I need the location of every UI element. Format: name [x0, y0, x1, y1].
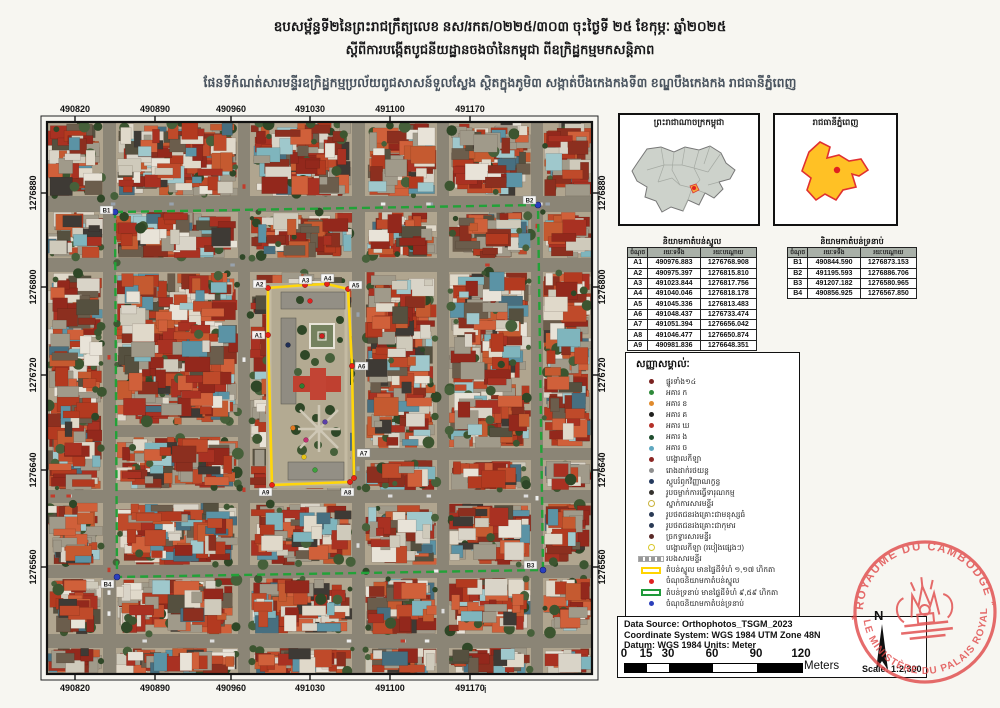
inset-map-phnom-penh: រាជធានីភ្នំពេញ	[773, 113, 898, 226]
point-symbol	[649, 457, 654, 462]
y-axis-label: 1276880	[597, 175, 607, 210]
legend-item-label: ច្រកទ្វារសារមន្ទីរ	[666, 533, 711, 541]
legend-item-label: រូបថតជនរងគ្រោះជាមនុស្សធំ	[666, 511, 745, 519]
table-row: A5491045.3361276813.483	[628, 299, 757, 309]
legend-item: អគារ ក	[636, 387, 797, 398]
x-axis-label: 491100	[375, 683, 405, 693]
table-row: A4491040.0461276818.178	[628, 289, 757, 299]
scalebar-tick: 120	[791, 648, 810, 660]
table-row: A1490976.8831276768.908	[628, 258, 757, 268]
zone-symbol	[641, 589, 661, 596]
scalebar-tick: 30	[662, 648, 675, 660]
legend-item: រោងដាក់រថយន្ត	[636, 465, 797, 476]
y-axis-label: 1276800	[597, 269, 607, 304]
y-axis-label: 1276880	[28, 175, 38, 210]
column-header: រយៈទទឹង	[648, 248, 700, 258]
point-symbol	[649, 579, 654, 584]
scalebar-unit: Meters	[804, 660, 839, 672]
point-symbol	[649, 512, 654, 517]
svg-text:A2: A2	[256, 282, 264, 288]
legend-item: រូបថតជនរងគ្រោះជាមនុស្សធំ	[636, 509, 797, 520]
map-point-label: A5	[349, 281, 362, 289]
y-axis-label: 1276640	[28, 452, 38, 487]
legend-item-label: អគារ ច	[666, 444, 687, 452]
column-header: រយៈបណ្ដោយ	[700, 248, 756, 258]
column-header: រយៈបណ្ដោយ	[860, 248, 916, 258]
table-row: A8491046.4771276650.874	[628, 330, 757, 340]
point-symbol	[649, 401, 654, 406]
table-row: A7491051.3941276656.042	[628, 320, 757, 330]
y-axis-label: 1276720	[28, 357, 38, 392]
inset-map-cambodia: ព្រះរាជាណាចក្រកម្ពុជា	[618, 113, 760, 226]
x-axis-label: 491030	[295, 683, 325, 693]
legend-item: អគារ ច	[636, 443, 797, 454]
point-symbol	[648, 544, 655, 551]
map-point-label: B3	[524, 561, 537, 569]
y-axis-label: 1276640	[597, 452, 607, 487]
legend-item: របងសារមន្ទីរ	[636, 554, 797, 565]
data-source-block: Data Source: Orthophotos_TSGM_2023Coordi…	[618, 619, 926, 651]
legend-items: ផ្នូរទាំង១៤អគារ កអគារ ខអគារ គអគារ ឃអគារ …	[636, 376, 797, 609]
legend-item: ស្តូបរំឭកវិញ្ញាណក្ខន្ធ	[636, 476, 797, 487]
x-axis-label: 490960	[216, 683, 246, 693]
y-axis-label: 1276800	[28, 269, 38, 304]
point-symbol	[649, 446, 654, 451]
legend-item: អគារ ង	[636, 431, 797, 442]
phnom-penh-map-graphic	[775, 130, 892, 218]
legend-item-label: ផ្នូរទាំង១៤	[666, 378, 696, 386]
legend-item: តំបន់ស្នូល មានផ្ទៃដីទំហំ ១,១៧ ហិកតា	[636, 565, 797, 576]
legend-item-label: តំបន់ស្នូល មានផ្ទៃដីទំហំ ១,១៧ ហិកតា	[666, 566, 775, 574]
x-axis-label: 490890	[140, 683, 170, 693]
info-line: Coordinate System: WGS 1984 UTM Zone 48N	[624, 630, 926, 641]
table-row: A2490975.3971276815.810	[628, 268, 757, 278]
x-axis-label: 491170	[455, 683, 485, 693]
legend-item-label: ស្នាក់ការសារមន្ទីរ	[666, 500, 714, 508]
legend-item-label: របងសារមន្ទីរ	[666, 555, 702, 563]
info-line: Data Source: Orthophotos_TSGM_2023	[624, 619, 926, 630]
x-axis-label: 490820	[60, 683, 90, 693]
scalebar-tick: 15	[640, 648, 653, 660]
legend: សញ្ញាសម្គាល់ៈ ផ្នូរទាំង១៤អគារ កអគារ ខអគា…	[625, 352, 800, 617]
buffer-zone-coordinate-table: ចំណុចរយៈទទឹងរយៈបណ្ដោយB1490844.5901276873…	[787, 247, 917, 299]
map-point-label: A3	[299, 276, 312, 284]
svg-text:A4: A4	[324, 276, 332, 282]
point-symbol	[649, 490, 654, 495]
svg-text:A5: A5	[352, 283, 360, 289]
map-point-label: A6	[355, 362, 368, 370]
legend-item: ចំណុចនិយាមកាតំបន់ស្នូល	[636, 576, 797, 587]
y-axis-label: 1276720	[597, 357, 607, 392]
x-axis-label: 490960	[216, 104, 246, 114]
legend-item: ផ្នូរទាំង១៤	[636, 376, 797, 387]
inset-phnom-penh-title: រាជធានីភ្នំពេញ	[775, 117, 896, 130]
point-symbol	[649, 423, 654, 428]
zone-symbol	[641, 567, 661, 574]
svg-text:A3: A3	[302, 278, 310, 284]
legend-item: អគារ ខ	[636, 398, 797, 409]
legend-item: អគារ គ	[636, 409, 797, 420]
legend-item: ស្នាក់ការសារមន្ទីរ	[636, 498, 797, 509]
map-point-label: A8	[341, 488, 354, 496]
page-number: i	[484, 684, 486, 696]
legend-item: ចំណុចនិយាមកាតំបន់ទ្រនាប់	[636, 598, 797, 609]
legend-item-label: បង្គោលកីឡា	[666, 455, 701, 463]
legend-title: សញ្ញាសម្គាល់ៈ	[636, 357, 797, 372]
scale-bar	[624, 663, 803, 673]
legend-item: អគារ ឃ	[636, 420, 797, 431]
map-point-label: A1	[252, 331, 265, 339]
legend-item: រូបថតជនរងគ្រោះជាកុមារ	[636, 520, 797, 531]
legend-item-label: ចំណុចនិយាមកាតំបន់ទ្រនាប់	[666, 600, 744, 608]
inset-cambodia-title: ព្រះរាជាណាចក្រកម្ពុជា	[620, 117, 758, 130]
table-row: B4490856.9251276567.850	[788, 289, 917, 299]
legend-item-label: ស្តូបរំឭកវិញ្ញាណក្ខន្ធ	[666, 478, 720, 486]
legend-item: តំបន់ទ្រនាប់ មានផ្ទៃដីទំហំ ៩,៥៩ ហិកតា	[636, 587, 797, 598]
x-axis-label: 490890	[140, 104, 170, 114]
map-point-label: A2	[253, 280, 266, 288]
svg-text:A7: A7	[360, 451, 368, 457]
svg-text:B4: B4	[104, 582, 112, 588]
legend-item-label: អគារ ង	[666, 433, 687, 441]
table-row: B2491195.5931276886.706	[788, 268, 917, 278]
column-header: រយៈទទឹង	[808, 248, 860, 258]
legend-item: បង្គោលកីឡា (របៀងផ្សេងៗ)	[636, 542, 797, 553]
point-symbol	[648, 500, 655, 507]
map-info-box: Data Source: Orthophotos_TSGM_2023Coordi…	[617, 616, 927, 678]
point-symbol	[649, 479, 654, 484]
document-page: ឧបសម្ព័ន្ធទី២នៃព្រះរាជក្រឹត្យលេខ នស/រកត/…	[0, 0, 1000, 708]
table-row: A9490981.8361276648.351	[628, 340, 757, 350]
point-symbol	[649, 435, 654, 440]
x-axis-label: 491030	[295, 104, 325, 114]
legend-item-label: អគារ ខ	[666, 400, 687, 408]
legend-item: បង្គោលកីឡា	[636, 454, 797, 465]
x-axis-label: 491100	[375, 104, 405, 114]
point-symbol	[649, 379, 654, 384]
svg-text:A6: A6	[358, 364, 366, 370]
column-header: ចំណុច	[788, 248, 808, 258]
legend-item-label: តំបន់ទ្រនាប់ មានផ្ទៃដីទំហំ ៩,៥៩ ហិកតា	[666, 589, 778, 597]
table-row: B3491207.1821276580.965	[788, 278, 917, 288]
map-point-label: A9	[259, 488, 272, 496]
legend-item-label: រូបថតជនរងគ្រោះជាកុមារ	[666, 522, 736, 530]
scalebar-tick: 90	[750, 648, 763, 660]
point-symbol	[649, 390, 654, 395]
point-symbol	[649, 412, 654, 417]
orthophoto-map: A1A2A3A4A5A6A7A8A9B1B2B3B449082049082049…	[0, 0, 1000, 708]
scalebar-tick: 60	[706, 648, 719, 660]
map-point-label: B4	[101, 580, 114, 588]
scale-ratio-text: Scale: 1:2,300	[862, 664, 922, 674]
svg-text:A8: A8	[344, 490, 352, 496]
capital-marker-dot	[692, 186, 696, 190]
column-header: ចំណុច	[628, 248, 648, 258]
legend-item: ច្រកទ្វារសារមន្ទីរ	[636, 531, 797, 542]
legend-item: រូបចម្លាក់ការធ្វើទារុណកម្ម	[636, 487, 797, 498]
point-symbol	[649, 468, 654, 473]
y-axis-label: 1276560	[28, 549, 38, 584]
map-point-label: A7	[357, 449, 370, 457]
table-row: B1490844.5901276873.153	[788, 258, 917, 268]
legend-item-label: អគារ ក	[666, 389, 687, 397]
svg-text:A1: A1	[255, 333, 263, 339]
svg-text:B2: B2	[526, 198, 534, 204]
svg-text:B1: B1	[103, 208, 111, 214]
svg-text:A9: A9	[262, 490, 270, 496]
legend-item-label: អគារ ឃ	[666, 422, 690, 430]
map-point-label: B2	[523, 196, 536, 204]
point-symbol	[649, 601, 654, 606]
table-row: A6491048.4371276733.474	[628, 309, 757, 319]
point-symbol	[649, 523, 654, 528]
scalebar-tick: 0	[621, 648, 627, 660]
y-axis-label: 1276560	[597, 549, 607, 584]
map-point-label: A4	[321, 274, 334, 282]
x-axis-label: 491170	[455, 104, 485, 114]
table-row: A3491023.8441276817.756	[628, 278, 757, 288]
legend-item-label: រូបចម្លាក់ការធ្វើទារុណកម្ម	[666, 489, 735, 497]
fence-symbol	[638, 556, 664, 562]
site-location-dot	[834, 167, 840, 173]
map-point-label: B1	[100, 206, 113, 214]
core-zone-coordinate-table: ចំណុចរយៈទទឹងរយៈបណ្ដោយA1490976.8831276768…	[627, 247, 757, 351]
legend-item-label: ចំណុចនិយាមកាតំបន់ស្នូល	[666, 577, 739, 585]
x-axis-label: 490820	[60, 104, 90, 114]
point-symbol	[649, 534, 654, 539]
legend-item-label: បង្គោលកីឡា (របៀងផ្សេងៗ)	[666, 544, 744, 552]
svg-text:B3: B3	[527, 563, 535, 569]
legend-item-label: អគារ គ	[666, 411, 687, 419]
legend-item-label: រោងដាក់រថយន្ត	[666, 467, 709, 475]
cambodia-map-graphic	[620, 130, 754, 218]
